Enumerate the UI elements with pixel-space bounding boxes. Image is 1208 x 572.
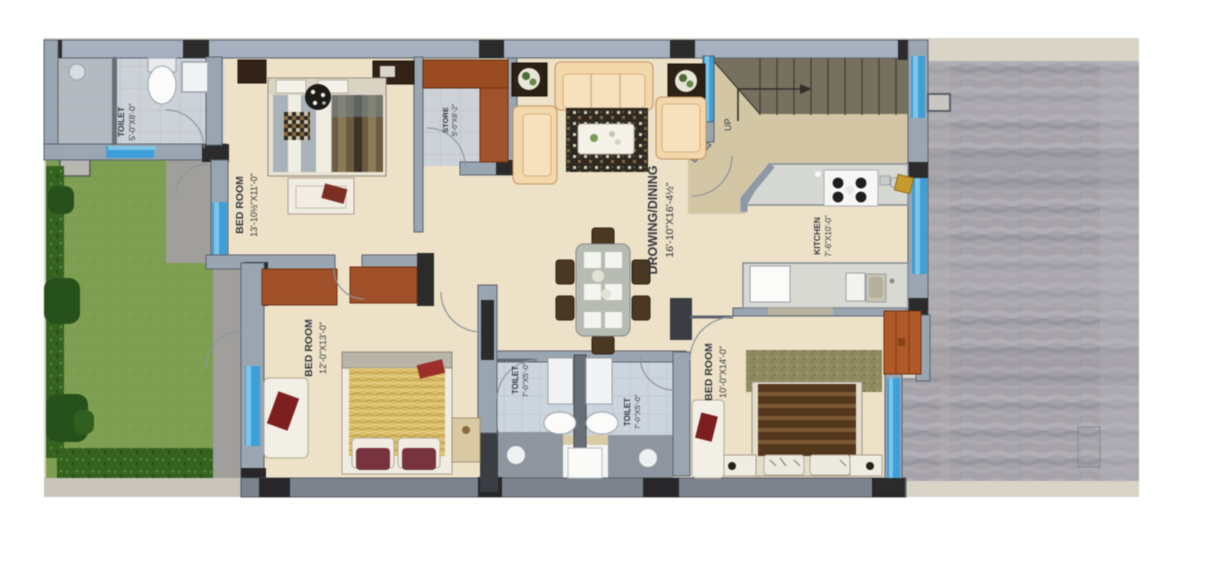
svg-text:UP: UP [723,118,733,131]
svg-text:TOILET: TOILET [511,366,520,394]
svg-text:STORE: STORE [441,107,450,133]
svg-text:TOILET: TOILET [623,398,632,426]
svg-text:BED ROOM: BED ROOM [703,343,715,401]
svg-text:BED ROOM: BED ROOM [303,319,315,377]
svg-text:KITCHEN: KITCHEN [812,217,822,255]
svg-text:10'-0"X14'-0": 10'-0"X14'-0" [718,346,728,398]
svg-text:5'-0"X8'-0": 5'-0"X8'-0" [128,103,137,140]
svg-text:DROWING/DINING: DROWING/DINING [646,165,660,274]
svg-text:7'-0"X5'-0": 7'-0"X5'-0" [521,362,530,397]
svg-text:TOILET: TOILET [116,106,126,137]
svg-text:16'-10"X16'-4½": 16'-10"X16'-4½" [664,182,676,257]
svg-text:BED ROOM: BED ROOM [234,176,246,234]
svg-text:7'-6"X10'-0": 7'-6"X10'-0" [824,215,833,257]
svg-text:13'-10½"X11'-0": 13'-10½"X11'-0" [249,173,259,237]
svg-text:7'-0"X5'-0": 7'-0"X5'-0" [633,394,642,429]
svg-text:12'-0"X13'-0": 12'-0"X13'-0" [318,322,328,374]
svg-text:5'-0"X8'-2": 5'-0"X8'-2" [452,103,459,136]
